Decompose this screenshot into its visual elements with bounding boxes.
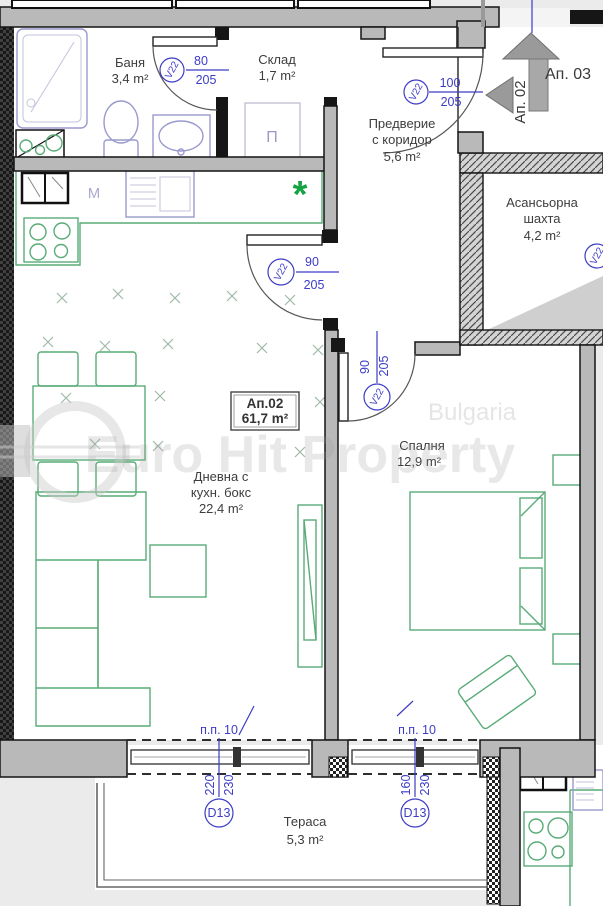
door-tag: D13: [404, 806, 427, 820]
door-width: 90: [358, 360, 372, 374]
apartment-area: 61,7 m²: [242, 411, 289, 426]
room-label-hall-1: Предверие: [369, 116, 436, 131]
door-height: 205: [377, 356, 391, 377]
room-label-bathroom: Баня: [115, 55, 145, 70]
room-area-terrace: 5,3 m²: [287, 832, 325, 847]
room-label-hall-2: с коридор: [372, 132, 432, 147]
kitchen-machine-symbol: М: [88, 185, 101, 202]
fridge-marker-icon: *: [293, 174, 308, 216]
door-height: 230: [418, 775, 432, 796]
room-label-terrace: Тераса: [284, 814, 327, 829]
parapet-label: п.п. 10: [200, 723, 238, 737]
kitchen-sink-unit: [22, 173, 68, 203]
door-width: 90: [305, 255, 319, 269]
door-height: 205: [304, 278, 325, 292]
nav-label-ap02: Ап. 02: [512, 80, 529, 123]
room-label-living-2: кухн. бокс: [191, 485, 252, 500]
apartment-id: Ап.02: [247, 396, 284, 411]
door-width: 80: [194, 54, 208, 68]
watermark-country: Bulgaria: [428, 399, 517, 426]
door-height: 205: [441, 95, 462, 109]
door-width: 100: [440, 76, 461, 90]
door-height: 230: [222, 775, 236, 796]
floor-plan: V22 80 205 V22 100 205 V22 90 205 90 205…: [0, 0, 603, 906]
room-area-storage: 1,7 m²: [259, 68, 297, 83]
door-tag: D13: [208, 806, 231, 820]
room-label-elevator-2: шахта: [523, 211, 561, 226]
room-area-living: 22,4 m²: [199, 501, 244, 516]
room-label-elevator-1: Асансьорна: [506, 195, 578, 210]
room-area-elevator: 4,2 m²: [524, 228, 562, 243]
room-area-bathroom: 3,4 m²: [112, 71, 150, 86]
parapet-label: п.п. 10: [398, 723, 436, 737]
room-label-storage: Склад: [258, 52, 296, 67]
storage-unit-symbol: П: [266, 129, 278, 146]
nav-label-ap03: Ап. 03: [545, 66, 591, 83]
door-width: 160: [399, 775, 413, 796]
door-height: 205: [196, 73, 217, 87]
watermark-brand: Euro Hit Property: [85, 426, 516, 484]
apartment-id-box: Ап.02 61,7 m²: [231, 392, 299, 430]
door-width: 220: [203, 775, 217, 796]
washing-box: [16, 130, 64, 158]
room-area-hall: 5,6 m²: [384, 149, 422, 164]
